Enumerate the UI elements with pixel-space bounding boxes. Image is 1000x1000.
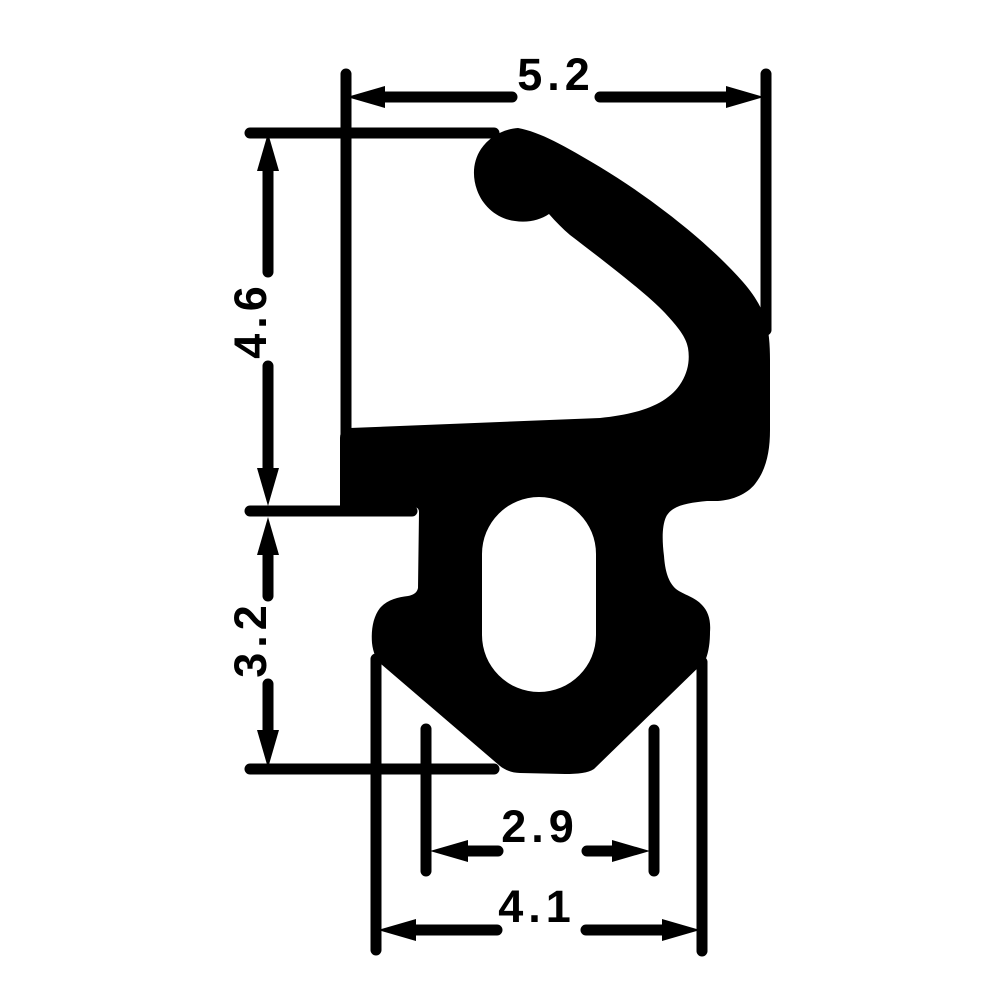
arrow-left-icon xyxy=(378,919,416,941)
dim-label-overall-width: 5.2 xyxy=(517,49,595,100)
arrow-right-icon xyxy=(662,919,700,941)
dim-label-base-width: 4.1 xyxy=(498,881,576,932)
arrow-right-icon xyxy=(612,840,650,862)
arrow-up-icon xyxy=(257,133,279,171)
seal-profile-diagram: 5.2 4.6 3.2 2.9 4.1 xyxy=(0,0,1000,1000)
dim-label-stem-width: 2.9 xyxy=(501,801,579,852)
dim-label-upper-height: 4.6 xyxy=(225,281,276,359)
dim-label-lower-height: 3.2 xyxy=(225,600,276,678)
arrow-left-icon xyxy=(430,840,468,862)
arrow-down-icon xyxy=(257,730,279,768)
profile-drawing-canvas: 5.2 4.6 3.2 2.9 4.1 xyxy=(0,0,1000,1000)
arrow-right-icon xyxy=(726,86,764,108)
arrow-left-icon xyxy=(347,86,385,108)
arrow-down-icon xyxy=(257,468,279,506)
arrow-up-icon xyxy=(257,517,279,555)
